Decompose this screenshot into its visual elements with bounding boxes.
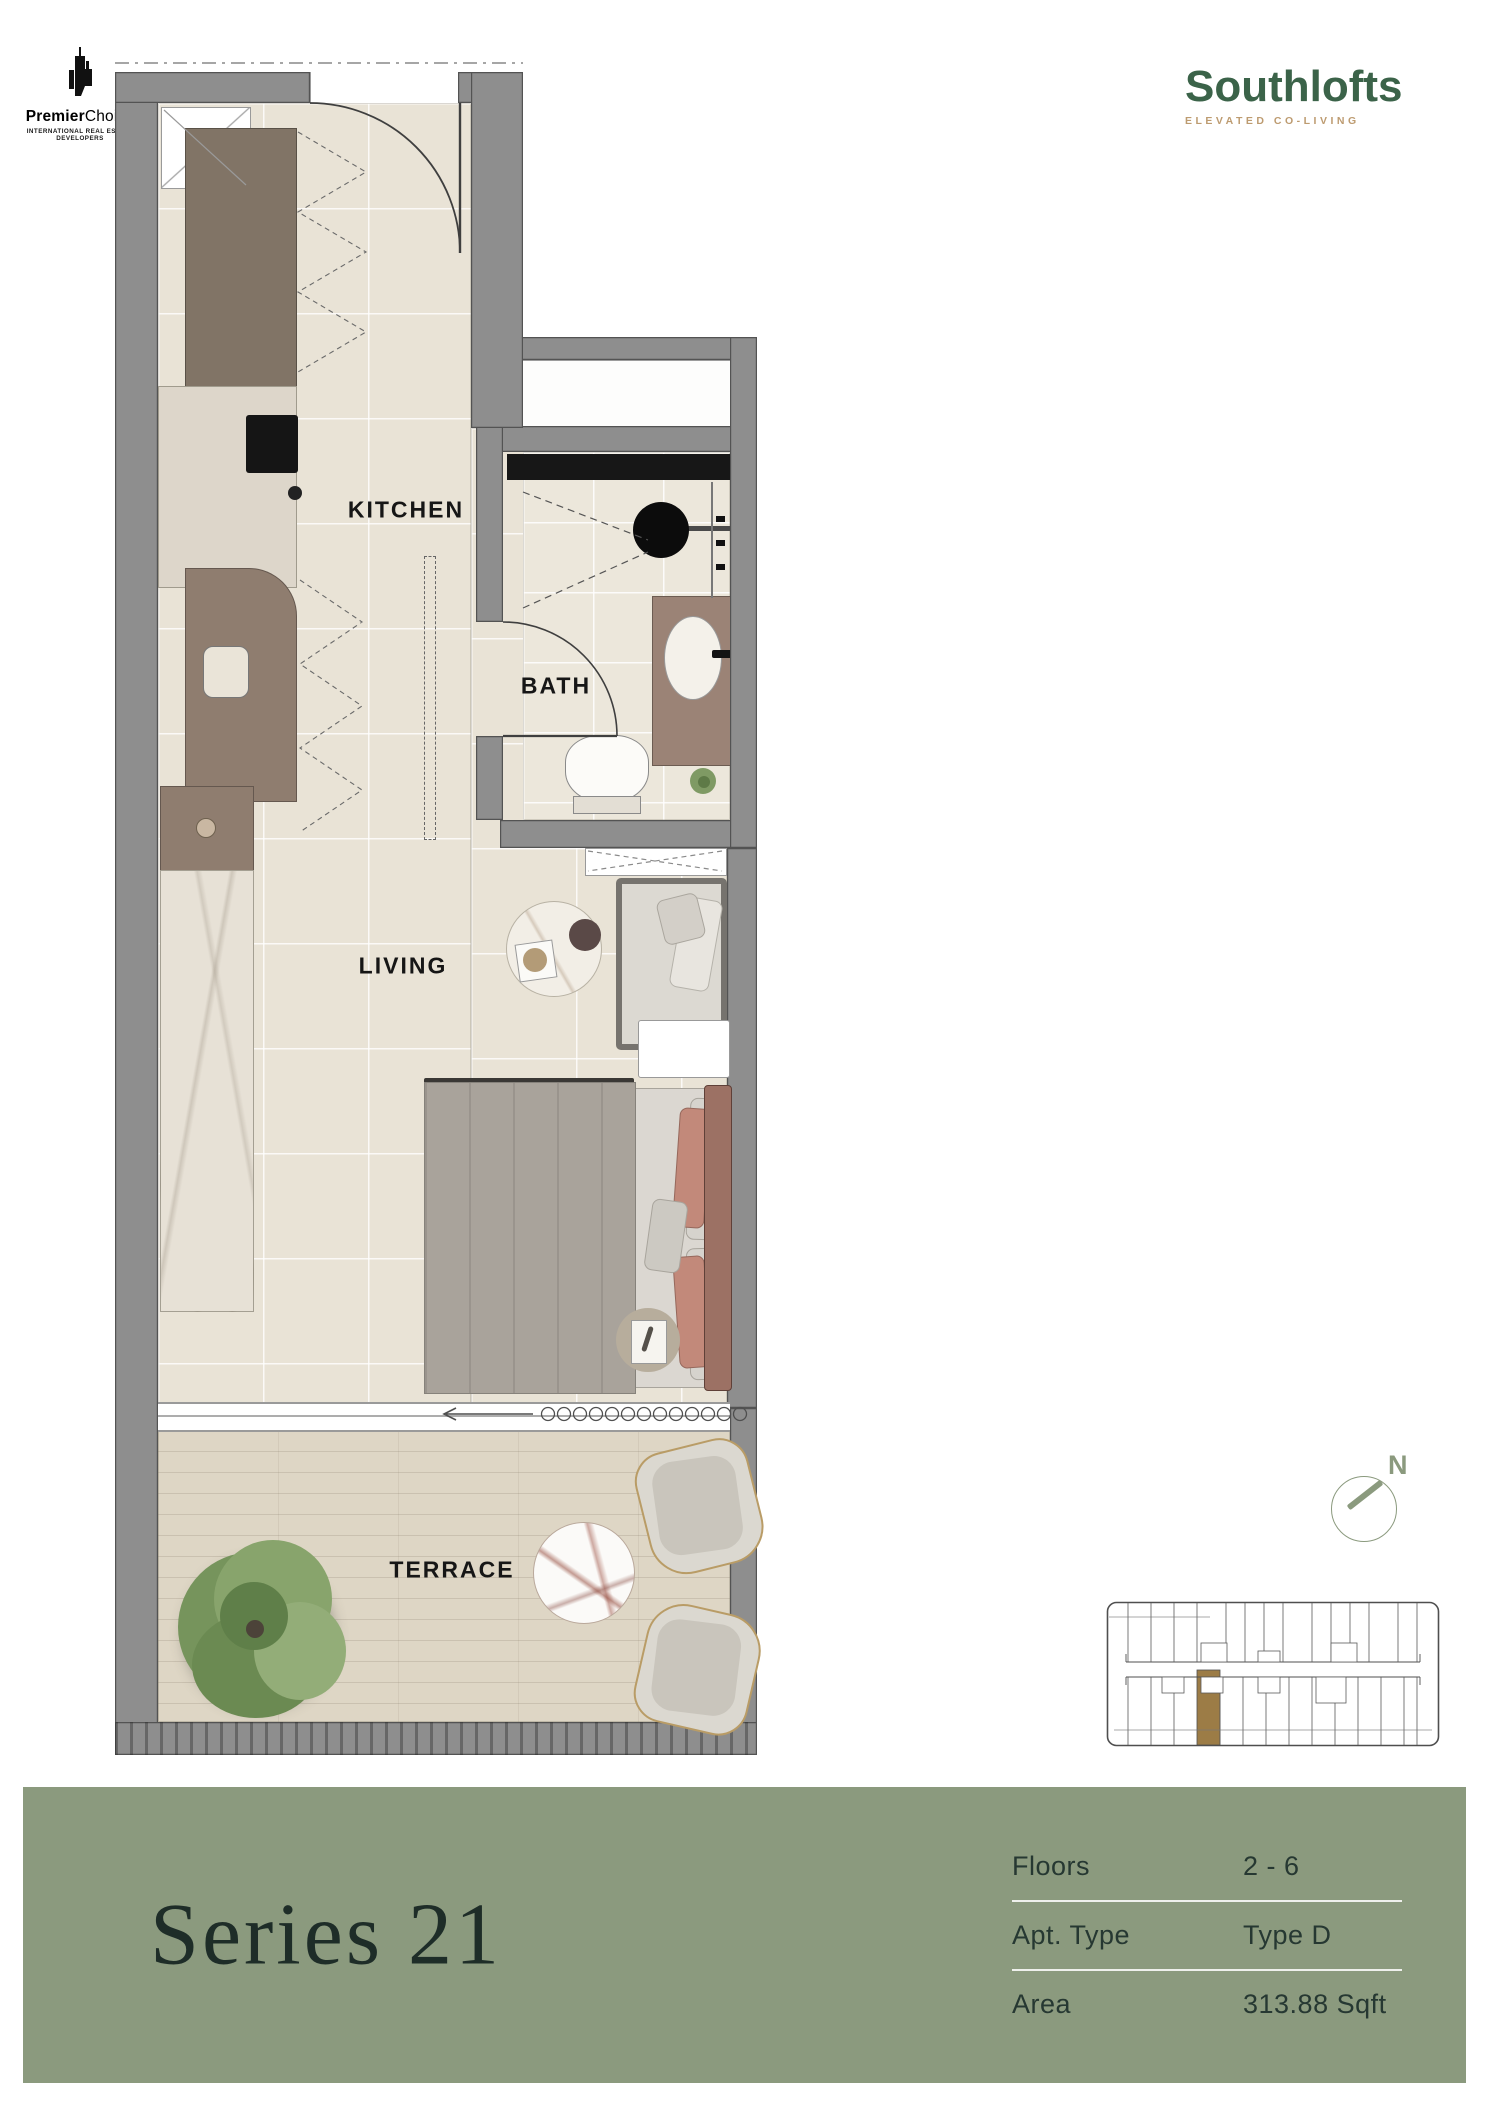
- area-label: Area: [1012, 1989, 1243, 2020]
- living-label: LIVING: [359, 953, 448, 980]
- table-row-apt-type: Apt. Type Type D: [1012, 1902, 1402, 1971]
- shower-control-1: [716, 516, 725, 522]
- compass-north-label: N: [1388, 1450, 1408, 1481]
- curtain-direction-arrow: [444, 1408, 533, 1420]
- shaft-diagonal: [164, 110, 246, 185]
- table-row-area: Area 313.88 Sqft: [1012, 1971, 1402, 2038]
- building-key-plan: [1106, 1601, 1440, 1747]
- shower-control-2: [716, 540, 725, 546]
- compass-circle: [1331, 1476, 1397, 1542]
- key-plan-outline: [1108, 1603, 1439, 1746]
- terrace-label: TERRACE: [389, 1557, 514, 1584]
- shower-screen-dash-1: [523, 492, 648, 540]
- shower-control-3: [716, 564, 725, 570]
- shower-screen-dash-2: [523, 552, 648, 608]
- series-title: Series 21: [150, 1885, 502, 1986]
- unit-details-table: Floors 2 - 6 Apt. Type Type D Area 313.8…: [1012, 1833, 1402, 2038]
- series-banner: Series 21 Floors 2 - 6 Apt. Type Type D …: [23, 1787, 1466, 2083]
- floors-label: Floors: [1012, 1851, 1243, 1882]
- closet-cross-dash: [588, 851, 722, 871]
- area-value: 313.88 Sqft: [1243, 1989, 1387, 2020]
- cabinet-zigzag-lower: [300, 580, 362, 832]
- entry-door-arc: [310, 103, 460, 253]
- apt-type-label: Apt. Type: [1012, 1920, 1243, 1951]
- kitchen-label: KITCHEN: [348, 497, 464, 524]
- bath-label: BATH: [521, 673, 591, 700]
- cabinet-zigzag-upper: [298, 132, 366, 372]
- floors-value: 2 - 6: [1243, 1851, 1300, 1882]
- table-row-floors: Floors 2 - 6: [1012, 1833, 1402, 1902]
- apt-type-value: Type D: [1243, 1920, 1332, 1951]
- curtain-symbol: [542, 1408, 747, 1421]
